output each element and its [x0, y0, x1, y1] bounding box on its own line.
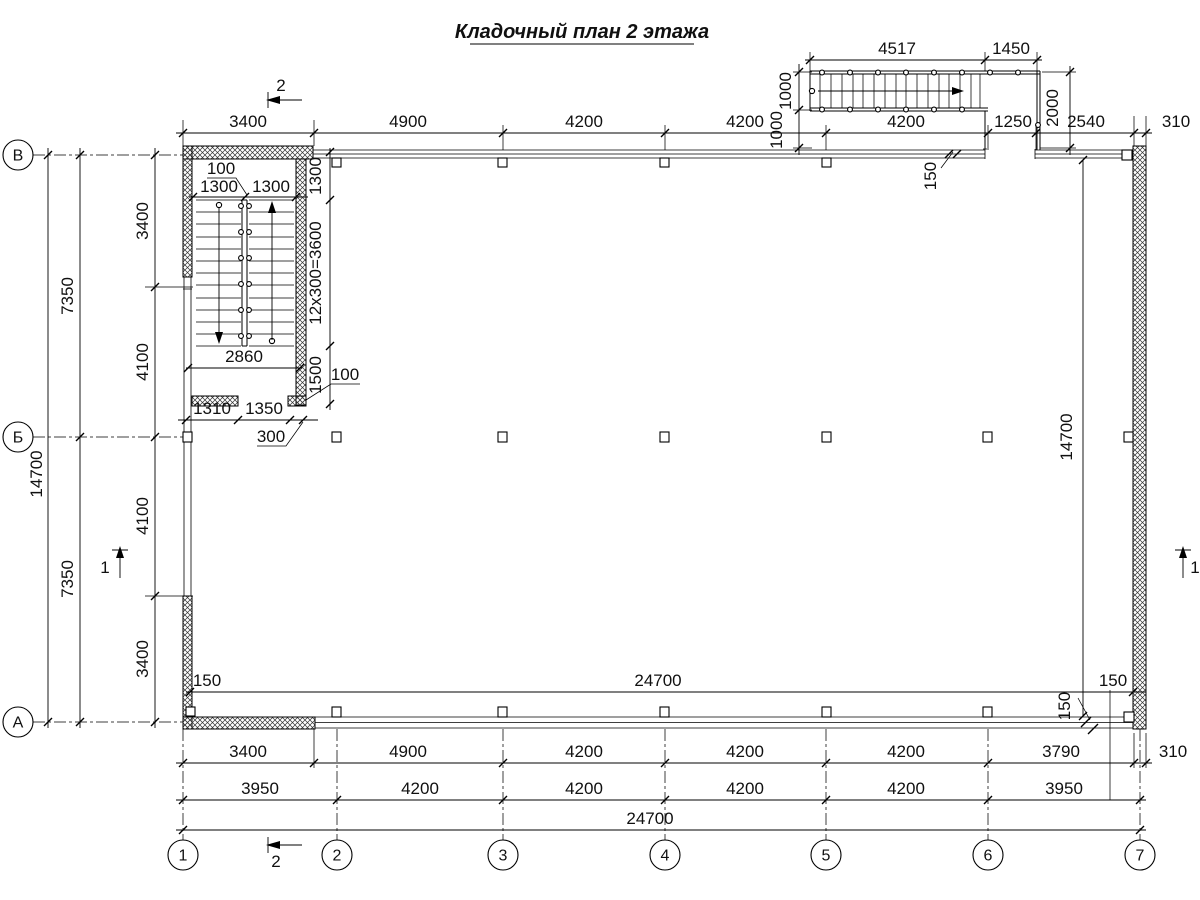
axis-label: 6	[984, 848, 993, 865]
stair-treads-right	[249, 200, 294, 346]
axis-markers-left: В Б А	[3, 140, 33, 737]
dim-label: 4900	[389, 112, 427, 131]
dim-label: 4200	[887, 779, 925, 798]
dim-label: 4200	[726, 742, 764, 761]
dim-label: 4517	[878, 39, 916, 58]
dim-label: 4100	[133, 343, 152, 381]
dim-label: 3950	[1045, 779, 1083, 798]
axis-label: 7	[1136, 848, 1145, 865]
dim-label: 14700	[1057, 413, 1076, 460]
inner-bottom-dimension-labels: 150 24700 150	[193, 671, 1127, 690]
dim-label: 1250	[994, 112, 1032, 131]
dim-label: 1000	[776, 72, 795, 110]
dim-label: 4200	[401, 779, 439, 798]
dim-label: 1450	[992, 39, 1030, 58]
dim-label: 310	[1162, 112, 1190, 131]
dim-label: 3790	[1042, 742, 1080, 761]
dim-label: 1300	[200, 177, 238, 196]
dim-label: 150	[1055, 692, 1074, 720]
dim-label: 4200	[565, 742, 603, 761]
axis-label: 5	[822, 848, 831, 865]
section-mark-1-left: 1	[100, 546, 128, 578]
dim-label: 2000	[1043, 89, 1062, 127]
bottom-dimension-labels: 3400 4900 4200 4200 4200 3790 310 3950 4…	[229, 742, 1187, 828]
dim-label: 7350	[58, 277, 77, 315]
dim-label: 4900	[389, 742, 427, 761]
axis-label: 2	[333, 848, 342, 865]
dim-label: 1300	[252, 177, 290, 196]
dim-label: 3400	[133, 640, 152, 678]
dim-label: 1310	[193, 399, 231, 418]
axis-label: 3	[499, 848, 508, 865]
dim-label: 1300	[306, 157, 325, 195]
dim-label: 14700	[27, 450, 46, 497]
dim-label: 24700	[626, 809, 673, 828]
dim-label: 3400	[229, 742, 267, 761]
stair-partition	[242, 200, 247, 346]
dim-label: 12x300=3600	[306, 221, 325, 325]
stairwell	[196, 200, 294, 346]
dim-label: 300	[257, 427, 285, 446]
axis-markers-bottom: 1 2 3 4 5 6 7	[168, 840, 1155, 870]
masonry-plan-sheet: Кладочный план 2 этажа	[0, 0, 1200, 900]
stairwell-dimension-labels: 100 1300 1300 1300 12x300=3600 1500 2860…	[193, 157, 360, 446]
dim-label: 4200	[565, 779, 603, 798]
section-label: 1	[100, 558, 109, 577]
axis-label: Б	[13, 430, 24, 447]
dim-label: 4200	[887, 112, 925, 131]
dim-label: 150	[921, 162, 940, 190]
left-dimension-labels: 14700 7350 7350 3400 4100 4100 3400	[27, 202, 152, 678]
drawing-title: Кладочный план 2 этажа	[455, 21, 709, 43]
floor-plan-drawing: Кладочный план 2 этажа	[0, 0, 1200, 900]
section-mark-2-top: 2	[266, 76, 302, 108]
dim-label: 4200	[726, 112, 764, 131]
dim-label: 3400	[133, 202, 152, 240]
dim-label: 3400	[229, 112, 267, 131]
external-stair	[809, 70, 1040, 150]
section-mark-2-bottom: 2	[266, 837, 302, 871]
right-dimension-labels: 14700 150	[1055, 413, 1076, 720]
dim-label: 100	[331, 365, 359, 384]
stair-direction-arrows	[215, 201, 276, 344]
dim-label: 7350	[58, 560, 77, 598]
section-label: 2	[271, 852, 280, 871]
stair-treads-left	[196, 200, 241, 346]
dim-label: 150	[1099, 671, 1127, 690]
section-label: 1	[1190, 558, 1199, 577]
axis-label: 4	[661, 848, 670, 865]
section-mark-1-right: 1	[1175, 546, 1200, 578]
dim-label: 2540	[1067, 112, 1105, 131]
dim-label: 150	[193, 671, 221, 690]
columns	[183, 150, 1134, 722]
dim-label: 24700	[634, 671, 681, 690]
dim-label: 3950	[241, 779, 279, 798]
dim-label: 4200	[565, 112, 603, 131]
section-label: 2	[276, 76, 285, 95]
dim-label: 1500	[306, 356, 325, 394]
axis-label: А	[13, 715, 24, 732]
dim-label: 100	[207, 159, 235, 178]
dim-label: 4100	[133, 497, 152, 535]
dim-label: 2860	[225, 347, 263, 366]
dim-label: 1350	[245, 399, 283, 418]
dim-label: 4200	[887, 742, 925, 761]
dim-label: 310	[1159, 742, 1187, 761]
dim-label: 1000	[767, 111, 786, 149]
axis-label: 1	[179, 848, 188, 865]
axis-label: В	[13, 148, 24, 165]
dim-label: 4200	[726, 779, 764, 798]
